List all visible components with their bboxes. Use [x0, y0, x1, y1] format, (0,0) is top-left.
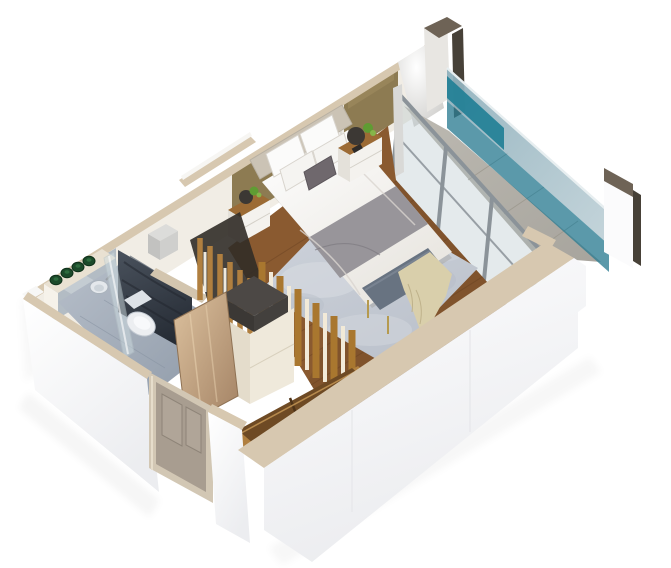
sink-basin — [94, 285, 104, 292]
plant-leaf — [257, 193, 262, 198]
towel-swirl — [76, 264, 81, 268]
towel-swirl — [54, 277, 59, 281]
floor-plan-svg — [0, 0, 671, 568]
east-pillar — [604, 168, 641, 268]
east-pillar-edge — [633, 190, 641, 266]
door-panel — [186, 407, 201, 453]
plant-dark — [347, 127, 365, 145]
towel-swirl — [87, 258, 92, 262]
plant-leaf — [370, 130, 376, 136]
towel-swirl — [65, 270, 70, 274]
floor-plan-render — [0, 0, 671, 568]
